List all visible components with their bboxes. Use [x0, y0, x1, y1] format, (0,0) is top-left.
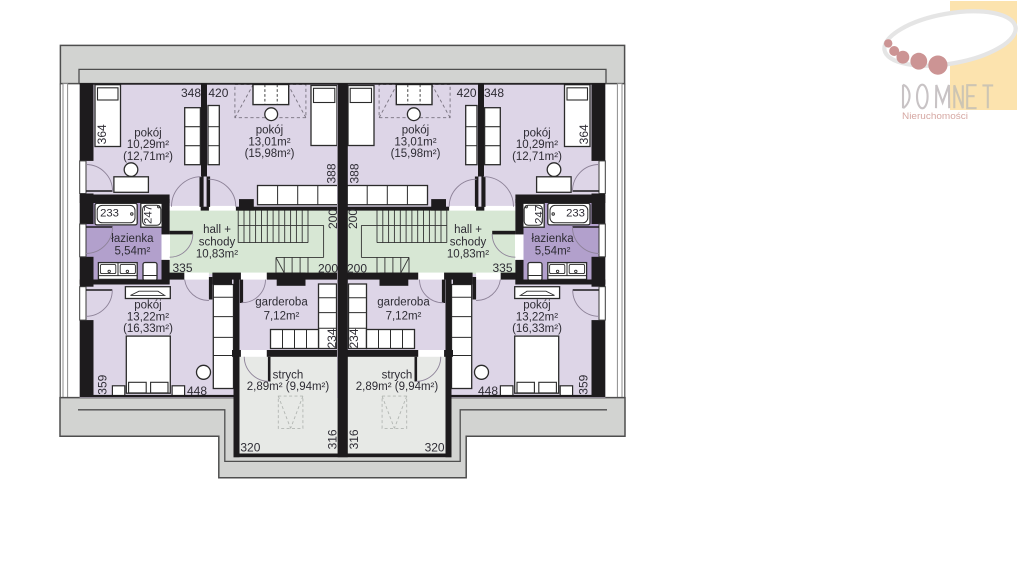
svg-text:2,89m² (9,94m²): 2,89m² (9,94m²): [247, 381, 330, 393]
svg-text:13,22m²: 13,22m²: [127, 311, 169, 323]
svg-text:pokój: pokój: [256, 125, 284, 137]
svg-text:pokój: pokój: [134, 300, 162, 312]
svg-text:garderoba: garderoba: [377, 297, 430, 309]
svg-text:335: 335: [492, 261, 512, 275]
svg-text:320: 320: [425, 441, 445, 455]
svg-text:233: 233: [100, 207, 119, 219]
svg-text:388: 388: [325, 163, 339, 183]
svg-text:garderoba: garderoba: [255, 297, 308, 309]
svg-text:schody: schody: [199, 236, 236, 248]
svg-text:10,83m²: 10,83m²: [196, 248, 238, 260]
svg-text:(15,98m²): (15,98m²): [391, 148, 441, 160]
svg-text:strych: strych: [382, 370, 413, 382]
svg-text:13,01m²: 13,01m²: [248, 136, 290, 148]
svg-text:pokój: pokój: [523, 127, 551, 139]
svg-text:pokój: pokój: [402, 125, 430, 137]
svg-text:247: 247: [143, 205, 155, 224]
svg-text:13,01m²: 13,01m²: [394, 136, 436, 148]
svg-text:359: 359: [577, 374, 591, 394]
svg-text:348: 348: [484, 86, 504, 100]
svg-text:247: 247: [534, 205, 546, 224]
svg-text:448: 448: [478, 384, 498, 398]
svg-text:233: 233: [566, 207, 585, 219]
svg-text:10,29m²: 10,29m²: [516, 139, 558, 151]
svg-text:10,29m²: 10,29m²: [127, 139, 169, 151]
svg-text:320: 320: [240, 441, 260, 455]
svg-text:200: 200: [318, 262, 338, 276]
svg-text:(12,71m²): (12,71m²): [512, 151, 562, 163]
svg-text:234: 234: [325, 328, 339, 348]
svg-text:359: 359: [96, 374, 110, 394]
svg-text:200: 200: [347, 262, 367, 276]
svg-text:pokój: pokój: [134, 127, 162, 139]
svg-text:364: 364: [577, 124, 591, 144]
svg-text:448: 448: [187, 384, 207, 398]
svg-text:420: 420: [457, 86, 477, 100]
svg-text:hall +: hall +: [203, 224, 231, 236]
svg-text:7,12m²: 7,12m²: [264, 311, 300, 323]
svg-text:234: 234: [347, 328, 361, 348]
svg-text:200: 200: [346, 209, 360, 229]
svg-text:5,54m²: 5,54m²: [535, 246, 571, 258]
svg-text:348: 348: [181, 86, 201, 100]
svg-text:hall +: hall +: [454, 224, 482, 236]
svg-text:łazienka: łazienka: [531, 233, 574, 245]
svg-text:10,83m²: 10,83m²: [447, 248, 489, 260]
svg-text:(16,33m²): (16,33m²): [123, 323, 173, 335]
svg-text:316: 316: [347, 429, 361, 449]
svg-text:364: 364: [95, 124, 109, 144]
svg-text:7,12m²: 7,12m²: [386, 311, 422, 323]
svg-text:316: 316: [325, 429, 339, 449]
svg-text:(15,98m²): (15,98m²): [245, 148, 295, 160]
svg-text:2,89m² (9,94m²): 2,89m² (9,94m²): [356, 381, 439, 393]
svg-text:420: 420: [208, 86, 228, 100]
svg-text:335: 335: [172, 261, 192, 275]
svg-text:5,54m²: 5,54m²: [115, 246, 151, 258]
svg-text:pokój: pokój: [523, 300, 551, 312]
svg-text:(16,33m²): (16,33m²): [512, 323, 562, 335]
svg-text:13,22m²: 13,22m²: [516, 311, 558, 323]
svg-text:(12,71m²): (12,71m²): [123, 151, 173, 163]
svg-text:łazienka: łazienka: [111, 233, 154, 245]
svg-text:388: 388: [348, 163, 362, 183]
svg-text:strych: strych: [273, 370, 304, 382]
svg-text:Nieruchomości: Nieruchomości: [902, 111, 968, 121]
svg-text:200: 200: [326, 209, 340, 229]
svg-text:schody: schody: [450, 236, 487, 248]
